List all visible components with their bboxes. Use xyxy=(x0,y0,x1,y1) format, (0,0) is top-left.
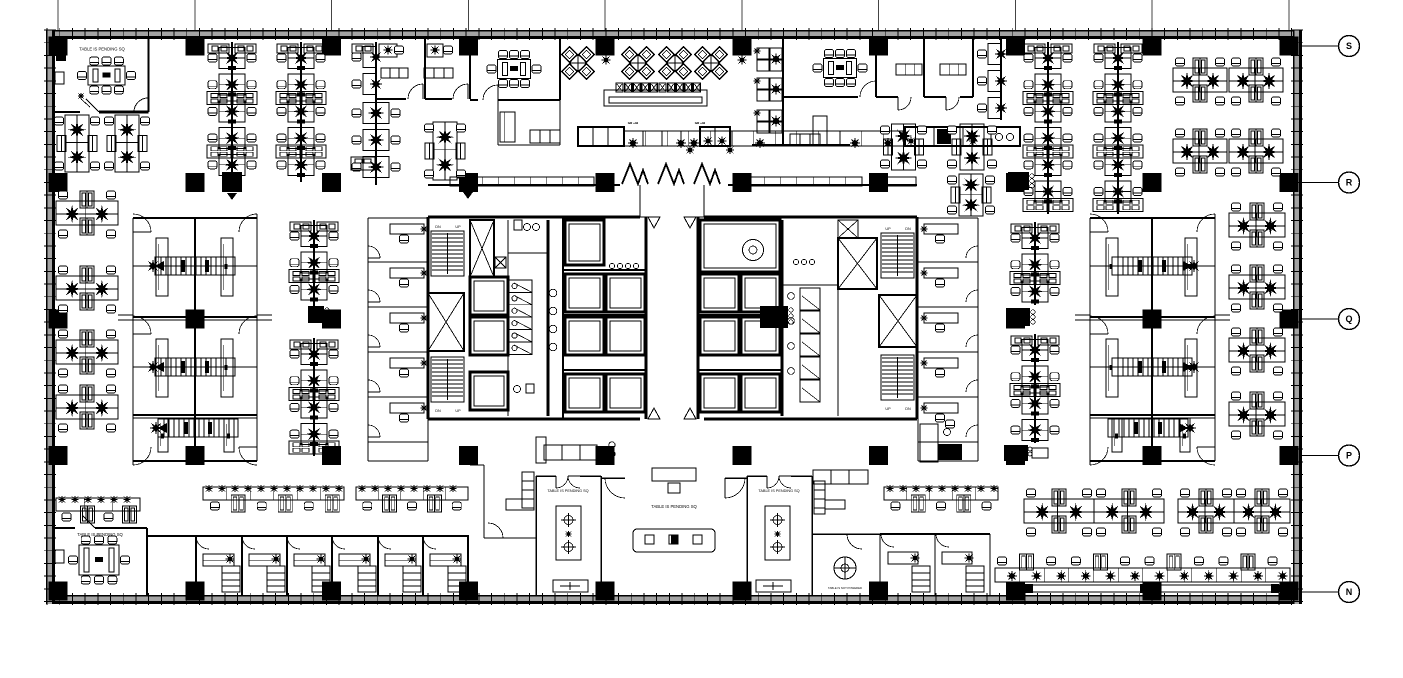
svg-text:DN: DN xyxy=(435,225,441,229)
svg-text:S: S xyxy=(1346,41,1352,51)
svg-text:UP: UP xyxy=(455,225,461,229)
svg-text:TABLE IS NOT POWERED: TABLE IS NOT POWERED xyxy=(828,586,862,590)
svg-text:P: P xyxy=(1346,451,1352,461)
svg-text:R: R xyxy=(1346,178,1353,188)
svg-text:UP: UP xyxy=(455,409,461,413)
svg-text:TABLE IS PENDING SQ: TABLE IS PENDING SQ xyxy=(79,47,125,52)
svg-text:TABLE IS PENDING SQ: TABLE IS PENDING SQ xyxy=(651,504,697,509)
svg-text:DN: DN xyxy=(905,227,911,231)
svg-text:DN: DN xyxy=(905,407,911,411)
svg-text:UP: UP xyxy=(885,407,891,411)
svg-text:Q: Q xyxy=(1345,314,1352,324)
svg-text:TABLE IS PENDING SQ: TABLE IS PENDING SQ xyxy=(547,489,588,493)
svg-text:TABLE IS PENDING SQ: TABLE IS PENDING SQ xyxy=(758,489,799,493)
svg-text:GR +42: GR +42 xyxy=(695,121,706,125)
svg-text:UP: UP xyxy=(885,227,891,231)
svg-text:N: N xyxy=(1346,587,1353,597)
svg-text:DN: DN xyxy=(435,409,441,413)
svg-text:GR +42: GR +42 xyxy=(628,121,639,125)
